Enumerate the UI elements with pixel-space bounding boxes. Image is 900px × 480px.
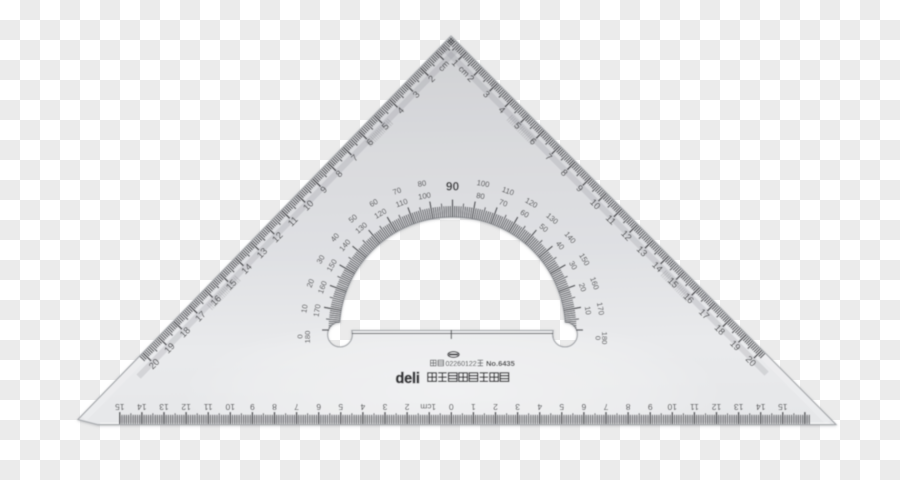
svg-text:0: 0 <box>449 402 454 412</box>
svg-text:7: 7 <box>294 402 299 412</box>
svg-text:9: 9 <box>648 402 653 412</box>
svg-text:10: 10 <box>225 402 235 412</box>
svg-text:2: 2 <box>404 402 409 412</box>
svg-text:10: 10 <box>667 402 677 412</box>
svg-text:deli: deli <box>396 371 420 387</box>
svg-text:4: 4 <box>360 402 365 412</box>
svg-text:12: 12 <box>712 402 722 412</box>
svg-text:3: 3 <box>382 402 387 412</box>
svg-text:7: 7 <box>603 402 608 412</box>
svg-text:80: 80 <box>476 191 486 201</box>
svg-text:13: 13 <box>159 402 169 412</box>
svg-text:6: 6 <box>581 402 586 412</box>
svg-text:10: 10 <box>583 306 593 316</box>
svg-text:0: 0 <box>594 336 603 340</box>
svg-text:5: 5 <box>559 402 564 412</box>
svg-text:80: 80 <box>417 179 427 189</box>
svg-text:02260122: 02260122 <box>446 361 477 368</box>
svg-text:11: 11 <box>690 402 699 412</box>
svg-text:2: 2 <box>493 402 498 412</box>
svg-text:3: 3 <box>515 402 520 412</box>
svg-text:12: 12 <box>181 402 191 412</box>
svg-text:13: 13 <box>734 402 744 412</box>
svg-text:8: 8 <box>625 402 630 412</box>
svg-text:4: 4 <box>537 402 542 412</box>
svg-text:1: 1 <box>471 402 476 412</box>
svg-text:11: 11 <box>204 402 213 412</box>
svg-text:9: 9 <box>250 402 255 412</box>
svg-text:14: 14 <box>756 402 766 412</box>
svg-text:8: 8 <box>272 402 277 412</box>
svg-text:14: 14 <box>137 402 147 412</box>
svg-text:180: 180 <box>303 331 312 344</box>
svg-text:1cm: 1cm <box>420 402 436 412</box>
svg-text:No.6435: No.6435 <box>486 359 515 368</box>
svg-text:15: 15 <box>115 402 125 412</box>
svg-text:6: 6 <box>316 402 321 412</box>
svg-text:10: 10 <box>299 304 309 314</box>
svg-text:90: 90 <box>446 180 460 194</box>
svg-text:15: 15 <box>778 402 788 412</box>
svg-text:5: 5 <box>338 402 343 412</box>
